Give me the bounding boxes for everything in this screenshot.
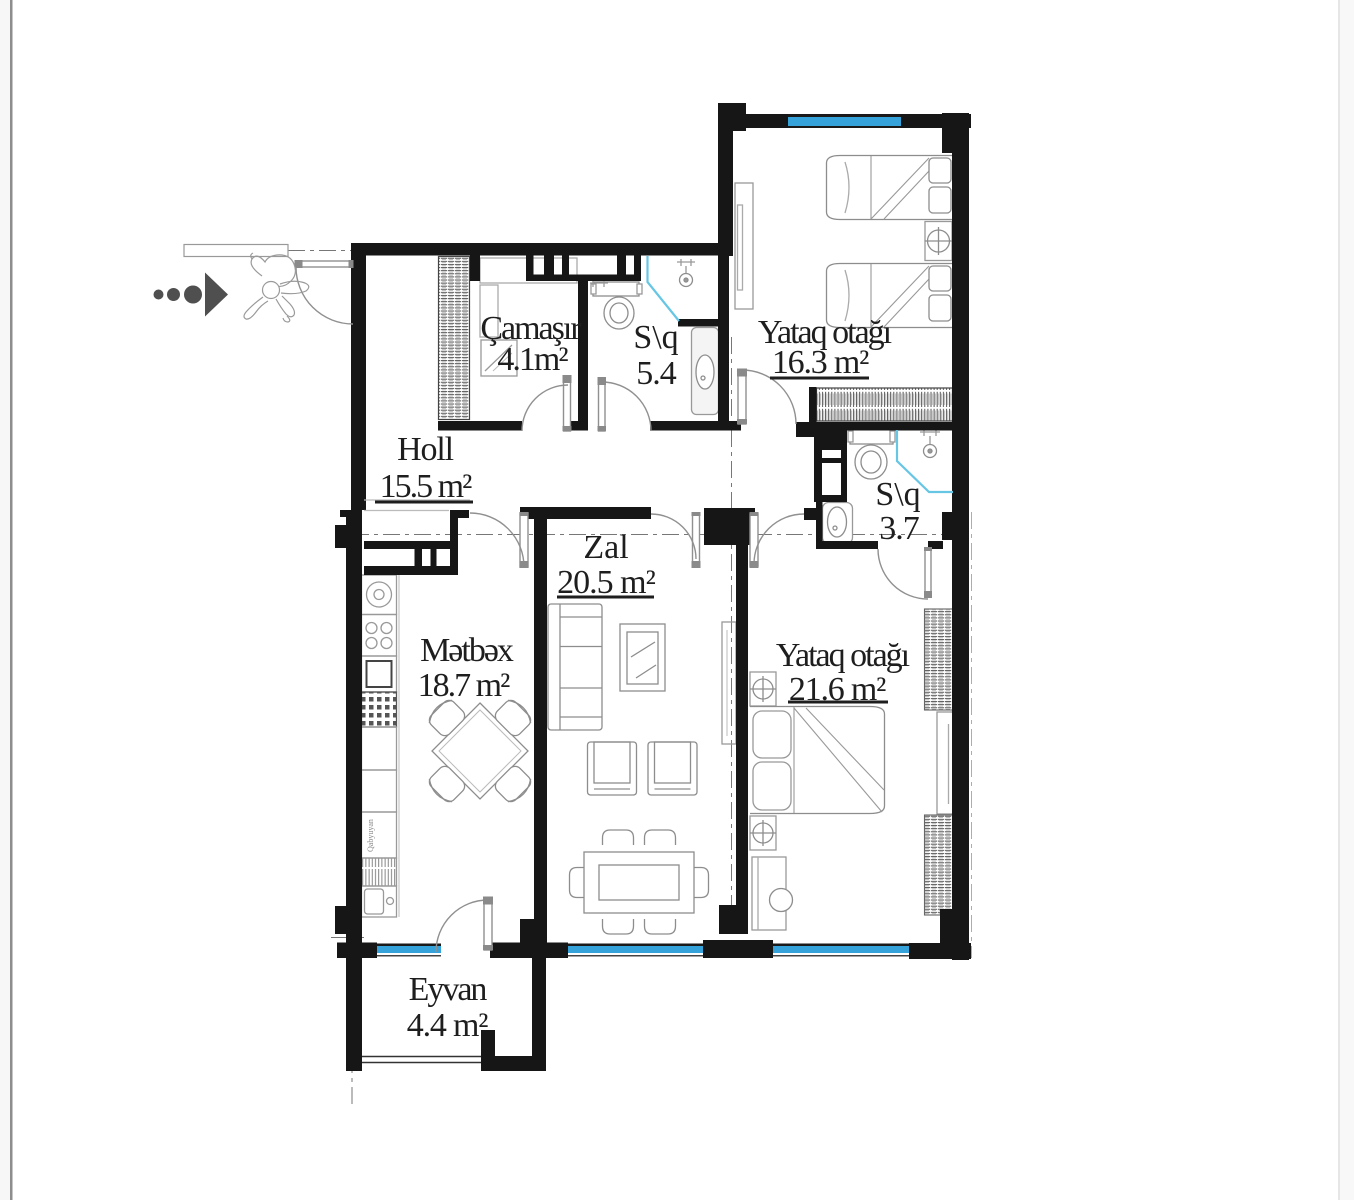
- svg-text:20.5 m²: 20.5 m²: [557, 564, 655, 601]
- svg-text:Eyvan: Eyvan: [409, 971, 488, 1008]
- svg-text:3.7: 3.7: [879, 510, 920, 547]
- svg-text:16.3 m²: 16.3 m²: [772, 344, 869, 381]
- svg-text:15.5 m²: 15.5 m²: [380, 468, 472, 505]
- svg-text:Zal: Zal: [583, 529, 628, 566]
- svg-text:Mətbəx: Mətbəx: [420, 632, 514, 669]
- svg-text:4.1m²: 4.1m²: [497, 341, 568, 378]
- svg-text:5.4: 5.4: [636, 355, 677, 392]
- svg-text:18.7 m²: 18.7 m²: [418, 667, 510, 704]
- svg-text:4.4 m²: 4.4 m²: [407, 1007, 488, 1044]
- svg-text:S\q: S\q: [875, 476, 920, 513]
- svg-text:Qabyuyan: Qabyuyan: [366, 819, 375, 852]
- svg-text:Holl: Holl: [397, 431, 453, 468]
- svg-text:S\q: S\q: [633, 319, 678, 356]
- svg-text:Yataq otağı: Yataq otağı: [776, 637, 910, 674]
